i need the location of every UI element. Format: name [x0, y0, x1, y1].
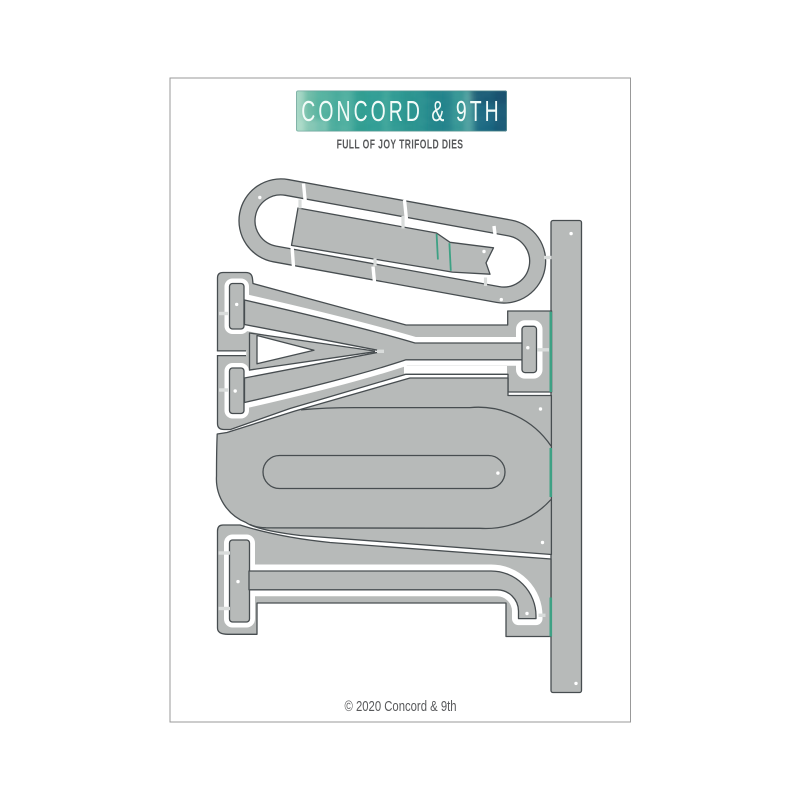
svg-text:© 2020 Concord & 9th: © 2020 Concord & 9th — [344, 698, 456, 715]
svg-text:FULL OF JOY TRIFOLD DIES: FULL OF JOY TRIFOLD DIES — [337, 138, 464, 152]
svg-text:CONCORD & 9TH: CONCORD & 9TH — [301, 96, 501, 128]
